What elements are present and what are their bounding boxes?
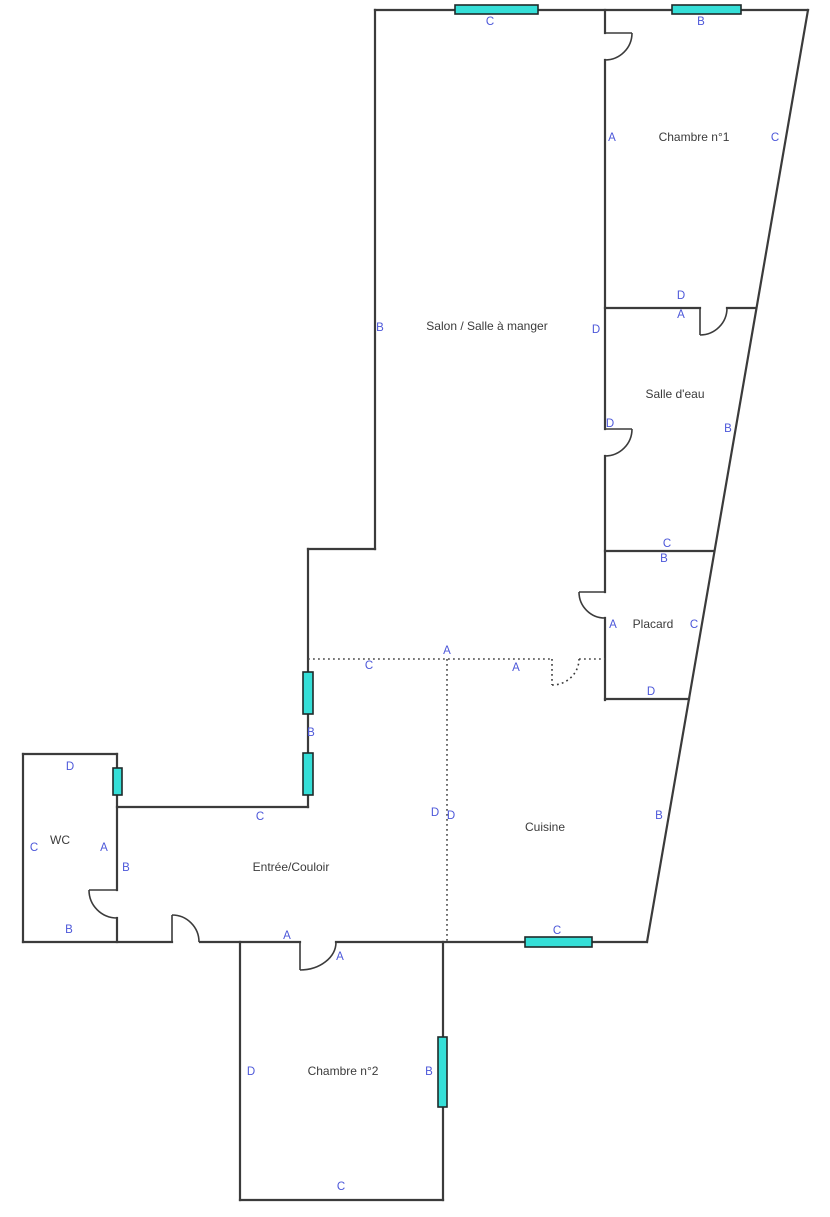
room-label: Cuisine — [525, 820, 565, 834]
wall-label: C — [690, 619, 698, 631]
wall-label: A — [443, 645, 451, 657]
wall-label: A — [283, 930, 291, 942]
wall-label: B — [724, 423, 732, 435]
window — [303, 672, 313, 714]
wall-label: A — [336, 951, 344, 963]
wall-label: D — [677, 290, 685, 302]
window — [455, 5, 538, 14]
wall-label: D — [431, 807, 439, 819]
room-label: Placard — [633, 617, 674, 631]
window — [672, 5, 741, 14]
wall-label: B — [376, 322, 384, 334]
room-label: Entrée/Couloir — [253, 860, 330, 874]
wall-label: D — [247, 1066, 255, 1078]
wall-label: A — [609, 619, 617, 631]
wall-label: C — [337, 1181, 345, 1193]
room-label: WC — [50, 833, 70, 847]
wall-label: A — [512, 662, 520, 674]
room-label: Chambre n°1 — [659, 130, 730, 144]
wall-label: B — [65, 924, 73, 936]
wall-label: A — [677, 309, 685, 321]
window — [525, 937, 592, 947]
wall-label: D — [606, 418, 614, 430]
wall-label: C — [486, 16, 494, 28]
room-label: Salon / Salle à manger — [426, 319, 547, 333]
wall-label: D — [592, 324, 600, 336]
wall-label: B — [307, 727, 315, 739]
window — [438, 1037, 447, 1107]
floor-plan-canvas: Chambre n°1Salon / Salle à mangerSalle d… — [0, 0, 830, 1212]
wall-label: D — [447, 810, 455, 822]
wall-label: B — [122, 862, 130, 874]
wall-label: D — [647, 686, 655, 698]
wall-label: A — [608, 132, 616, 144]
wall-label: D — [66, 761, 74, 773]
wall-label: B — [697, 16, 705, 28]
room-label: Chambre n°2 — [308, 1064, 379, 1078]
wall-label: B — [655, 810, 663, 822]
wall-label: C — [365, 660, 373, 672]
wall-label: C — [771, 132, 779, 144]
window — [303, 753, 313, 795]
wall-label: B — [425, 1066, 433, 1078]
wall-label: C — [30, 842, 38, 854]
wall-label: C — [553, 925, 561, 937]
floor-plan-svg: Chambre n°1Salon / Salle à mangerSalle d… — [0, 0, 830, 1212]
window — [113, 768, 122, 795]
wall-label: C — [663, 538, 671, 550]
wall-label: C — [256, 811, 264, 823]
room-label: Salle d'eau — [645, 387, 704, 401]
wall-label: B — [660, 553, 668, 565]
wall-label: A — [100, 842, 108, 854]
